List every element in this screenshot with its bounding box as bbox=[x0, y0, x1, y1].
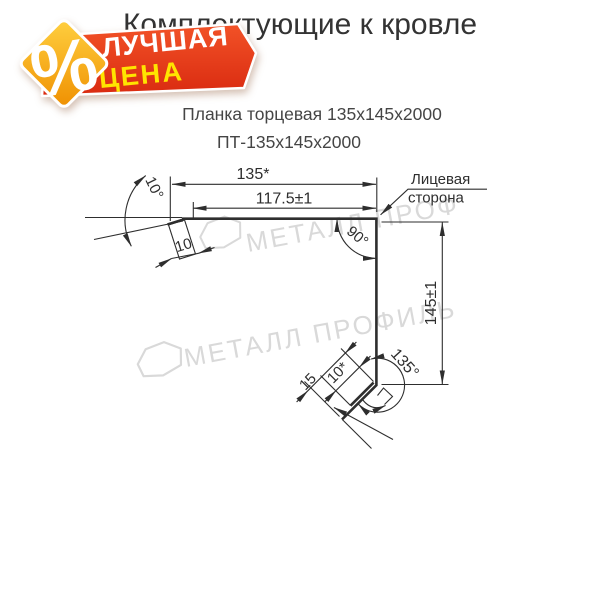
bottom-hem-flap bbox=[378, 388, 393, 405]
bottom-tip-arrow-line bbox=[334, 408, 393, 440]
face-side-label-line2: сторона bbox=[408, 190, 465, 207]
face-side-label-line1: Лицевая bbox=[411, 171, 470, 188]
watermark-middle-text: МЕТАЛЛ ПРОФИЛЬ bbox=[182, 293, 459, 373]
dim-height: 145±1 bbox=[423, 281, 440, 325]
left-hem-dim-arrow-a bbox=[156, 259, 172, 268]
dim-bottom-lip-length: 15 bbox=[296, 370, 320, 394]
dim-left-hem-angle: 10° bbox=[141, 174, 166, 202]
bottom-hem-dim-arrow-b bbox=[325, 391, 336, 402]
bottom-hem-dim-arrow-a bbox=[359, 356, 370, 367]
dim-face-width: 117.5±1 bbox=[256, 191, 313, 208]
left-hem-angle-arc bbox=[125, 176, 146, 247]
dim-bottom-angle: 135° bbox=[387, 346, 422, 382]
bottom-hem-fold-arc bbox=[363, 400, 386, 408]
page: Комплектующие к кровле Планка торцевая 1… bbox=[0, 0, 600, 600]
metall-profil-logo-icon bbox=[134, 339, 185, 380]
bottom-tip-ext-lower bbox=[342, 420, 371, 449]
bottom-lip-dim-arrow-a bbox=[345, 342, 356, 353]
best-price-badge: ЛУЧШАЯ ЦЕНА % bbox=[10, 5, 280, 125]
bottom-hem-line bbox=[351, 383, 374, 406]
dim-total-width: 135* bbox=[237, 166, 270, 183]
